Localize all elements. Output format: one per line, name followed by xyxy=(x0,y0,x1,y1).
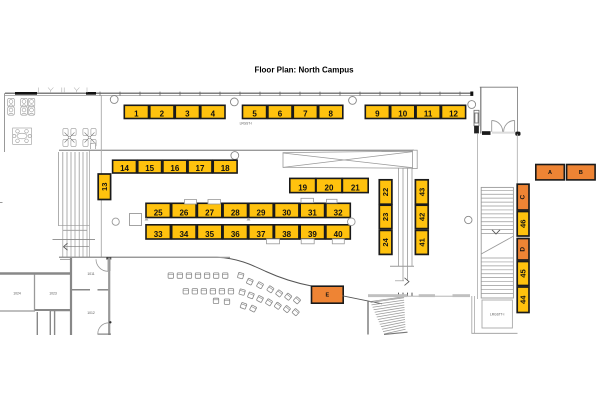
svg-text:32: 32 xyxy=(334,208,343,217)
svg-text:38: 38 xyxy=(282,230,291,239)
svg-text:13: 13 xyxy=(100,183,109,191)
svg-text:37: 37 xyxy=(257,230,266,239)
svg-text:D: D xyxy=(520,247,527,252)
svg-text:C: C xyxy=(520,194,527,199)
svg-text:23: 23 xyxy=(381,213,390,221)
svg-text:E: E xyxy=(326,293,330,299)
svg-text:2: 2 xyxy=(160,109,165,118)
svg-text:14: 14 xyxy=(120,164,129,173)
svg-text:33: 33 xyxy=(154,230,163,239)
svg-text:1: 1 xyxy=(134,109,139,118)
svg-text:Floor Plan: North Campus: Floor Plan: North Campus xyxy=(254,66,354,75)
svg-text:1011: 1011 xyxy=(87,272,94,276)
svg-text:24: 24 xyxy=(381,237,390,246)
svg-text:5: 5 xyxy=(252,109,257,118)
svg-text:43: 43 xyxy=(417,188,426,196)
svg-text:3: 3 xyxy=(185,109,190,118)
svg-text:29: 29 xyxy=(257,208,266,217)
svg-text:B: B xyxy=(579,170,583,176)
svg-text:8: 8 xyxy=(329,109,334,118)
svg-text:42: 42 xyxy=(417,213,426,221)
svg-text:36: 36 xyxy=(231,230,240,239)
svg-text:9: 9 xyxy=(375,109,380,118)
svg-text:44: 44 xyxy=(519,295,528,304)
svg-text:1024: 1024 xyxy=(13,292,21,296)
svg-text:45: 45 xyxy=(519,269,528,278)
svg-text:11: 11 xyxy=(424,109,433,118)
svg-text:7: 7 xyxy=(303,109,308,118)
svg-text:34: 34 xyxy=(179,230,188,239)
svg-text:12: 12 xyxy=(449,109,458,118)
svg-text:41: 41 xyxy=(417,237,426,246)
svg-text:20: 20 xyxy=(325,183,334,192)
svg-text:27: 27 xyxy=(205,208,214,217)
svg-text:LRGST-I: LRGST-I xyxy=(240,122,253,126)
svg-text:10: 10 xyxy=(398,109,407,118)
svg-text:16: 16 xyxy=(170,164,179,173)
svg-text:31: 31 xyxy=(308,208,317,217)
svg-text:15: 15 xyxy=(145,164,154,173)
svg-text:46: 46 xyxy=(519,220,528,228)
svg-text:A: A xyxy=(548,170,552,176)
svg-text:35: 35 xyxy=(205,230,214,239)
svg-text:28: 28 xyxy=(231,208,240,217)
svg-text:39: 39 xyxy=(308,230,317,239)
svg-text:30: 30 xyxy=(282,208,291,217)
svg-text:6: 6 xyxy=(278,109,283,118)
svg-text:26: 26 xyxy=(179,208,188,217)
svg-text:21: 21 xyxy=(351,183,360,192)
svg-text:4: 4 xyxy=(211,109,216,118)
svg-text:17: 17 xyxy=(196,164,205,173)
svg-text:LRGSTT-I: LRGSTT-I xyxy=(490,313,504,317)
svg-text:19: 19 xyxy=(298,183,307,192)
svg-text:1023: 1023 xyxy=(49,292,57,296)
svg-text:1012: 1012 xyxy=(87,311,95,315)
svg-text:40: 40 xyxy=(334,230,343,239)
svg-text:18: 18 xyxy=(221,164,230,173)
svg-text:25: 25 xyxy=(154,208,163,217)
svg-text:22: 22 xyxy=(381,188,390,196)
